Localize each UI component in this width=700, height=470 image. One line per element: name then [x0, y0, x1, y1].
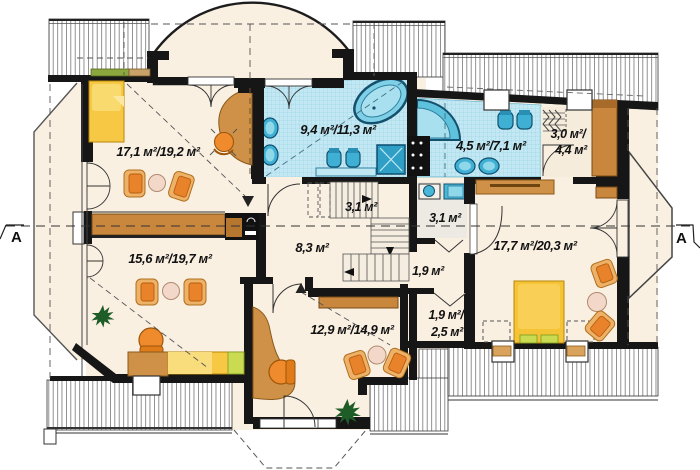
- svg-text:4,4 м²: 4,4 м²: [554, 143, 588, 157]
- svg-text:3,1 м²: 3,1 м²: [429, 211, 462, 225]
- svg-text:3,1 м²: 3,1 м²: [345, 200, 378, 214]
- svg-text:17,1 м²/19,2 м²: 17,1 м²/19,2 м²: [116, 144, 200, 159]
- svg-text:17,7 м²/20,3 м²: 17,7 м²/20,3 м²: [493, 238, 577, 253]
- svg-text:15,6 м²/19,7 м²: 15,6 м²/19,7 м²: [128, 251, 212, 266]
- svg-text:8,3 м²: 8,3 м²: [295, 240, 329, 255]
- svg-text:A: A: [11, 229, 22, 246]
- svg-text:A: A: [676, 230, 687, 247]
- svg-text:1,9 м²/: 1,9 м²/: [429, 308, 466, 322]
- svg-text:3,0 м²/: 3,0 м²/: [551, 127, 588, 141]
- svg-text:9,4 м²/11,3 м²: 9,4 м²/11,3 м²: [300, 122, 377, 137]
- svg-text:12,9 м²/14,9 м²: 12,9 м²/14,9 м²: [310, 322, 394, 337]
- svg-text:4,5 м²/7,1 м²: 4,5 м²/7,1 м²: [455, 138, 527, 153]
- svg-text:1,9 м²: 1,9 м²: [412, 264, 445, 278]
- svg-text:2,5 м²: 2,5 м²: [430, 325, 464, 339]
